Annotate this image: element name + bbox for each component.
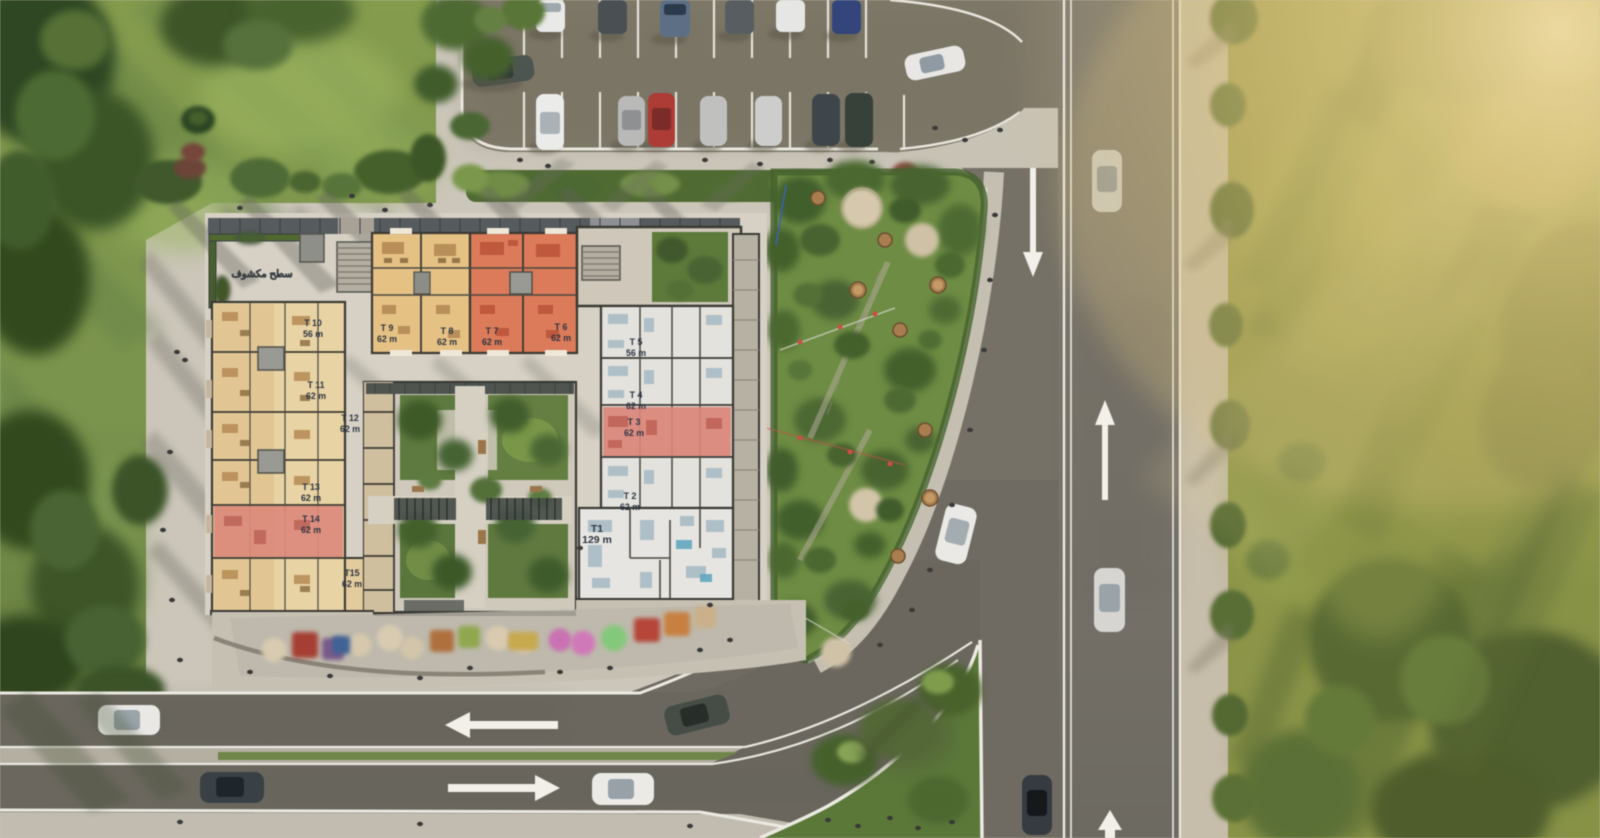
svg-text:T 8: T 8 (441, 326, 454, 336)
svg-text:129 m: 129 m (582, 534, 612, 546)
svg-text:T 3: T 3 (628, 417, 641, 427)
svg-text:T 10: T 10 (304, 318, 322, 328)
svg-text:62 m: 62 m (340, 424, 360, 434)
svg-text:T 7: T 7 (486, 326, 499, 336)
svg-text:62 m: 62 m (301, 493, 321, 503)
svg-text:T 11: T 11 (307, 380, 324, 390)
svg-text:T 13: T 13 (302, 482, 320, 492)
svg-text:سطح مكشوف: سطح مكشوف (231, 269, 292, 280)
svg-text:62 m: 62 m (377, 334, 397, 344)
svg-text:62 m: 62 m (624, 428, 644, 438)
svg-text:T 14: T 14 (302, 514, 320, 524)
svg-text:T 12: T 12 (341, 413, 359, 423)
svg-text:T 5: T 5 (630, 337, 643, 347)
svg-text:62 m: 62 m (551, 333, 571, 343)
svg-text:T 4: T 4 (630, 390, 643, 400)
svg-text:62 m: 62 m (626, 401, 646, 411)
svg-text:T 2: T 2 (624, 491, 637, 501)
svg-text:T15: T15 (344, 568, 359, 578)
svg-text:62 m: 62 m (482, 337, 502, 347)
svg-text:56 m: 56 m (303, 329, 323, 339)
svg-text:62 m: 62 m (306, 391, 326, 401)
svg-text:62 m: 62 m (620, 502, 640, 512)
svg-text:62 m: 62 m (437, 337, 457, 347)
svg-text:62 m: 62 m (301, 525, 321, 535)
svg-text:62 m: 62 m (342, 579, 362, 589)
svg-text:56 m: 56 m (626, 348, 646, 358)
svg-text:T 9: T 9 (381, 323, 394, 333)
svg-text:T 6: T 6 (555, 322, 568, 332)
